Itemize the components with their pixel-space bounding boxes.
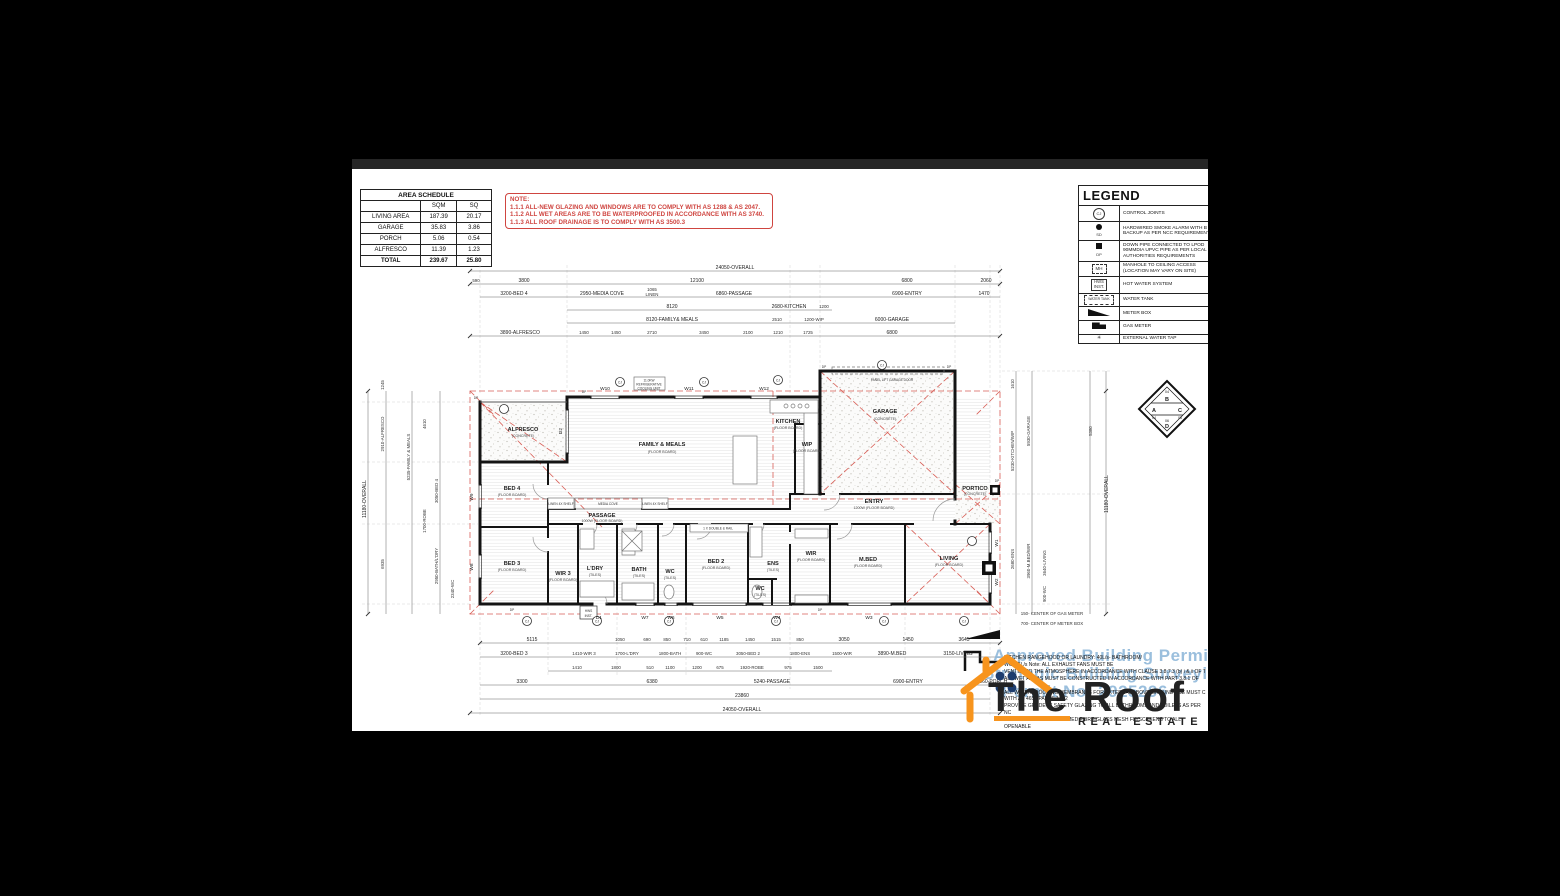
dim-label: 2950-MEDIA COVE [580, 291, 625, 297]
dimensions-bottom: 5115 1050 690 850 710 610 1185 1450 1515… [500, 637, 1007, 713]
dim-label: 23860 [735, 693, 749, 699]
dim-label: 1500 [813, 665, 823, 670]
room-sub: (FLOOR BOARD) [498, 568, 527, 572]
room-sub: (FLOOR BOARD) [935, 563, 964, 567]
dim-label: 5380 [1088, 426, 1093, 436]
room-label: KITCHEN [776, 419, 801, 425]
dim-label: 3450 [699, 330, 709, 335]
drawing-sheet: AREA SCHEDULE SQM SQ LIVING AREA187.3920… [352, 169, 1208, 731]
room-sub: (FLOOR BOARD) [648, 450, 677, 454]
room-label: M.BED [859, 557, 877, 563]
dim-label: 2910-ALFRESCO [380, 416, 385, 451]
dim-label: 12100 [690, 278, 704, 284]
hws-label: HWS [585, 609, 592, 613]
room-sub: (FLOOR BOARD) [793, 449, 822, 453]
dim-label: 900-WC [1042, 586, 1047, 602]
media-cove-label: MEDIA COVE [598, 502, 618, 506]
cj-marker: CJ [962, 620, 966, 624]
room-sub: (FLOOR BOARD) [797, 558, 826, 562]
dim-label: 2680-KITCHEN [772, 304, 807, 310]
dim-label: 2680-ENS [1010, 549, 1015, 569]
window-label: W2 [994, 578, 1000, 586]
logo-title: The Roof [988, 673, 1185, 720]
room-sub: (CONCRETE) [964, 492, 987, 496]
dim-label: 510 [646, 665, 654, 670]
dim-label: 975 [784, 665, 792, 670]
dim-label: 1500-WIR [832, 651, 852, 656]
panel-door-label: PANEL LIFT GARAGE DOOR [871, 378, 914, 382]
elevation-number: 06 [1165, 419, 1169, 423]
dim-label: 24050-OVERALL [716, 265, 755, 271]
dim-label: 3300 [516, 679, 527, 685]
dim-label: 1050 [615, 637, 625, 642]
room-label: ENS [767, 561, 779, 567]
elevation-marker: B A C D 04 04 05 06 [1139, 381, 1195, 437]
room-label: WC [665, 569, 674, 575]
dim-label: 5115 [527, 637, 538, 643]
dim-label: 6380 [646, 679, 657, 685]
window-label: W10 [600, 386, 610, 392]
dim-label: 8120 [666, 304, 677, 310]
room-sub: (TILES) [664, 576, 676, 580]
window-label: W7 [641, 615, 649, 621]
dim-label: 1450 [579, 330, 589, 335]
cj-marker: CJ [618, 381, 622, 385]
robe-label: 1 X DOUBLE & RAIL [703, 527, 733, 531]
room-label: BATH [631, 567, 646, 573]
cj-marker: CJ [702, 381, 706, 385]
room-sub: (FLOOR BOARD) [774, 426, 803, 430]
dim-label: 5235-FAMILY & MEALS [406, 434, 411, 481]
dim-label: 1450 [745, 637, 755, 642]
dp-label: DP [822, 365, 826, 369]
dim-label: 6860-PASSAGE [716, 291, 753, 297]
dim-label: 3645 [958, 637, 969, 643]
dim-label: 1450 [902, 637, 913, 643]
window-label: W3 [865, 615, 873, 621]
dim-label: 3890-M.BED [878, 651, 907, 657]
dim-label: 710 [683, 637, 691, 642]
dim-label: 2100 [743, 330, 753, 335]
dim-label: 900-WC [696, 651, 712, 656]
dim-label: 1515 [771, 637, 781, 642]
window-label: W8 [469, 563, 475, 571]
room-sub: (CONCRETE) [874, 417, 897, 421]
dp-label: DP [474, 396, 478, 400]
elevation-number: 04 [1165, 390, 1169, 394]
dim-label: 2950-BATH/L'DRY [434, 548, 439, 584]
window-label: W12 [759, 386, 769, 392]
dimensions-top: 24050-OVERALL 590 3800 12100 6800 2060 3… [472, 265, 991, 336]
floor-fills [480, 371, 1000, 604]
hws-label: INST. [585, 614, 593, 618]
dim-label: 1700-ROBE [422, 509, 427, 533]
room-label: LIVING [940, 556, 959, 562]
dim-label: 1410 [572, 665, 582, 670]
dim-label: 24050-OVERALL [723, 707, 762, 713]
dim-label: 850 [796, 637, 804, 642]
dim-label: 6800 [901, 278, 912, 284]
dim-label: 690 [643, 637, 651, 642]
dim-label: 6935 [380, 559, 385, 569]
dim-label: 11180-OVERALL [362, 480, 368, 518]
room-label: BED 3 [504, 561, 520, 567]
cj-marker: CJ [882, 620, 886, 624]
dim-label: 2710 [647, 330, 657, 335]
dp-label: DP [947, 365, 951, 369]
dim-label: 590 [472, 278, 480, 283]
dim-label: LINEN [646, 292, 659, 297]
dim-label: 5240-PASSAGE [754, 679, 791, 685]
room-sub: (TILES) [633, 574, 645, 578]
dim-label: 4610 [422, 419, 427, 429]
dim-label: 1700-L'DRY [615, 651, 639, 656]
meter-box-note: 700- CENTER OF METER BOX [1021, 621, 1084, 626]
dim-label: 3050-BED 2 [736, 651, 760, 656]
dim-label: 1610 [1010, 379, 1015, 389]
room-sub: (FLOOR BOARD) [854, 564, 883, 568]
door-label: D1 [596, 615, 602, 621]
dim-label: 5930-GARAGE [1026, 416, 1031, 446]
elevation-letter: C [1178, 408, 1182, 414]
door-label: D2 [558, 428, 564, 434]
dim-label: 1920-ROBE [740, 665, 764, 670]
dim-label: 5230-KITCHEN/WIP [1010, 431, 1015, 471]
room-label: GARAGE [873, 409, 898, 415]
window-label: W1 [994, 539, 1000, 547]
room-label: L'DRY [587, 566, 604, 572]
dim-label: 3960-M.BED/WIR [1026, 544, 1031, 579]
window-label: W9 [469, 493, 475, 501]
cj-marker: CJ [776, 379, 780, 383]
dim-label: 1185 [719, 637, 729, 642]
dim-label: 11180-OVERALL [1104, 475, 1110, 513]
dim-label: 6800 [886, 330, 897, 336]
cooling-unit-label: COOLING UNIT [637, 387, 660, 391]
dim-label: 3800 [518, 278, 529, 284]
dim-label: 850 [663, 637, 671, 642]
dim-label: 1725 [803, 330, 813, 335]
elevation-letter: A [1152, 408, 1156, 414]
room-label: BED 4 [504, 486, 521, 492]
logo-tagline: REAL ESTATE [1078, 716, 1202, 728]
dim-label: 3890-ALFRESCO [500, 330, 540, 336]
room-label: WIR 3 [555, 571, 571, 577]
dim-label: 1200-WIP [804, 317, 824, 322]
gas-meter-note: 150- CENTER OF GAS METER [1021, 611, 1083, 616]
cj-marker: CJ [880, 364, 884, 368]
room-sub: (TILES) [589, 573, 601, 577]
dp-label: DP [818, 608, 822, 612]
dim-label: 6900-ENTRY [892, 291, 922, 297]
dp-label: DP [582, 390, 586, 394]
dim-label: 2060 [980, 278, 991, 284]
dim-label: 1410-WIR 3 [572, 651, 596, 656]
window-label: W5 [716, 615, 724, 621]
cj-marker: CJ [525, 620, 529, 624]
dim-label: 1800-BATH [659, 651, 682, 656]
room-label: BED 2 [708, 559, 724, 565]
dim-label: 2510 [772, 317, 782, 322]
dim-label: 1450 [611, 330, 621, 335]
room-label: WIP [802, 442, 813, 448]
dp-label: DP [510, 608, 514, 612]
room-sub: 1200W (FLOOR BOARD) [854, 506, 895, 510]
dim-label: 3640-LIVING [1042, 550, 1047, 576]
linen-label: LINEN 4X SHELF [642, 502, 667, 506]
dim-label: 1200 [819, 304, 829, 309]
dim-label: 3050-BED 4 [434, 478, 439, 502]
dim-label: 3200-BED 4 [500, 291, 527, 297]
dim-label: 610 [700, 637, 708, 642]
dp-label: DP [995, 479, 999, 483]
elevation-letter: D [1165, 424, 1169, 430]
dim-label: 1800 [611, 665, 621, 670]
elevation-number: 04 [1152, 416, 1156, 420]
dim-label: 1800-ENS [790, 651, 810, 656]
room-label: WC [755, 586, 764, 592]
room-label: FAMILY & MEALS [639, 442, 686, 448]
dim-label: 1245 [380, 380, 385, 390]
dim-label: 675 [716, 665, 724, 670]
logo-underline [994, 716, 1070, 721]
room-sub: (TILES) [754, 593, 766, 597]
room-sub: (FLOOR BOARD) [498, 493, 527, 497]
window-label: W6 [667, 615, 675, 621]
room-sub: (CONCRETE) [512, 434, 535, 438]
room-label: ALFRESCO [508, 427, 539, 433]
dim-label: 1470 [978, 291, 989, 297]
dim-label: 8120-FAMILY& MEALS [646, 317, 699, 323]
room-sub: (TILES) [767, 568, 779, 572]
dim-label: 6000-GARAGE [875, 317, 910, 323]
dim-label: 6900-ENTRY [893, 679, 923, 685]
room-label: ENTRY [865, 499, 884, 505]
room-label: WIR [806, 551, 817, 557]
elevation-letter: B [1165, 397, 1169, 403]
dim-label: 1100 [665, 665, 675, 670]
the-roof-logo: The Roof REAL ESTATE [958, 645, 1206, 729]
window-label: W11 [684, 386, 694, 392]
elevation-number: 05 [1178, 416, 1182, 420]
dim-label: 1200 [692, 665, 702, 670]
dim-label: 3050 [838, 637, 849, 643]
room-sub: 1000W (FLOOR BOARD) [582, 519, 623, 523]
dim-label: 1210 [773, 330, 783, 335]
room-sub: (FLOOR BOARD) [702, 566, 731, 570]
room-sub: (FLOOR BOARD) [549, 578, 578, 582]
dim-label: 3200-BED 3 [500, 651, 527, 657]
window-label: W4 [773, 615, 781, 621]
linen-label: LINEN 4X SHELF [548, 502, 573, 506]
dim-label: 2340-WC [450, 580, 455, 599]
